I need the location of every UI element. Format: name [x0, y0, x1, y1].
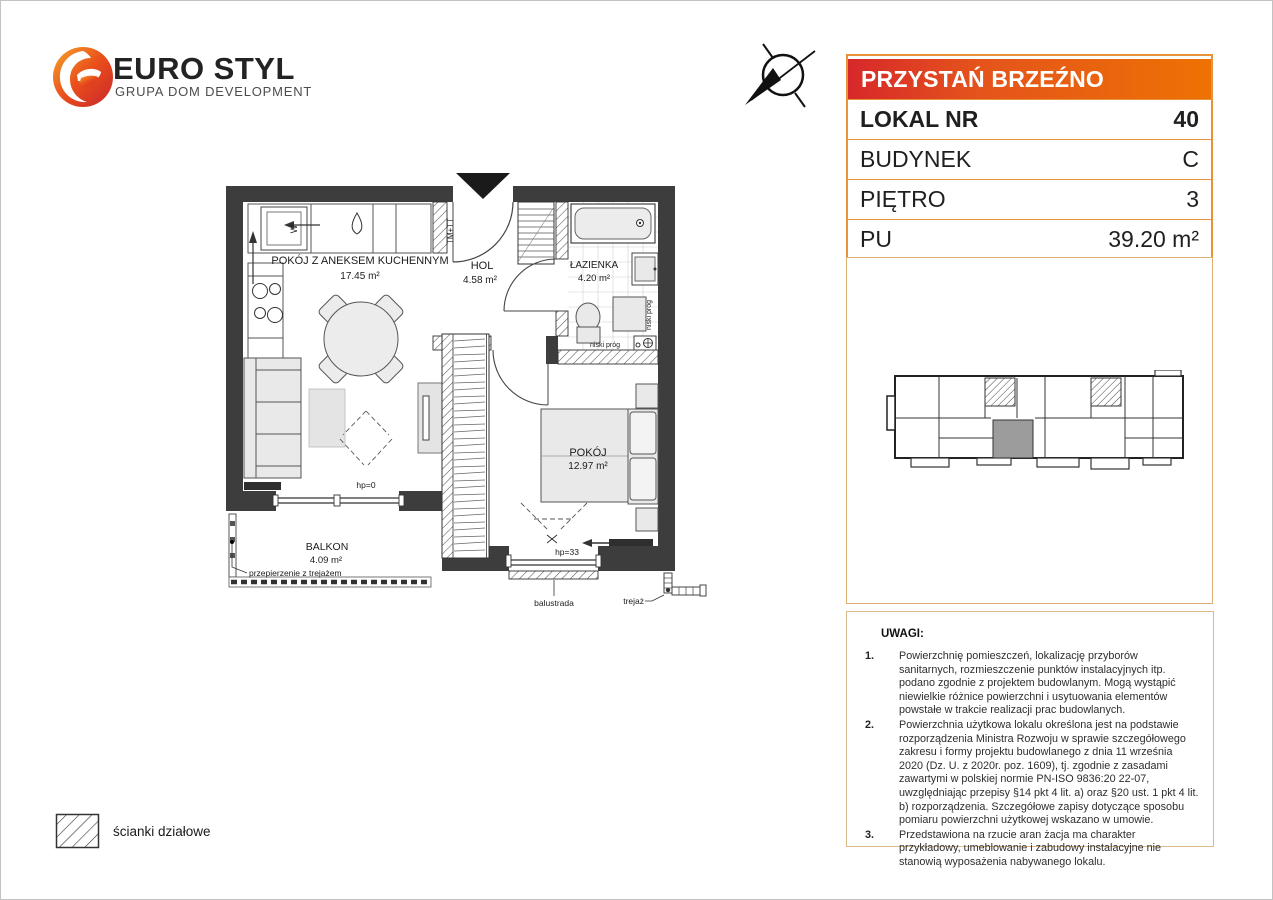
row-label: LOKAL NR — [860, 106, 978, 133]
rug — [309, 389, 345, 447]
bathroom-washer — [613, 297, 646, 331]
table-row-budynek: BUDYNEK C — [848, 139, 1211, 179]
row-label: PIĘTRO — [860, 186, 946, 213]
trellis — [645, 573, 706, 601]
room-label-balcony: BALKON — [306, 541, 349, 553]
table-row-pietro: PIĘTRO 3 — [848, 179, 1211, 219]
unit-info-table: PRZYSTAŃ BRZEŹNO LOKAL NR 40 BUDYNEK C P… — [846, 54, 1213, 261]
notes-box: UWAGI: 1. Powierzchnię pomieszczeń, loka… — [846, 611, 1214, 847]
entrance-marker — [456, 173, 510, 199]
low-threshold-label: niski próg — [590, 342, 620, 349]
notes-title: UWAGI: — [881, 628, 1199, 640]
radiator — [244, 482, 281, 490]
washer-label: W — [289, 224, 299, 233]
room-area-bedroom: 12.97 m² — [568, 461, 608, 472]
table-row-pu: PU 39.20 m² — [848, 219, 1211, 259]
wardrobe — [442, 334, 489, 558]
note-item-3: 3. Przedstawiona na rzucie aran żacja ma… — [861, 829, 1199, 870]
bedroom-window — [506, 555, 601, 567]
hp-zero-label: hp=0 — [356, 480, 375, 490]
row-label: BUDYNEK — [860, 146, 971, 173]
toilet — [576, 303, 600, 343]
shaft-label: TM+TT — [446, 218, 455, 244]
building-overview-plan — [885, 370, 1197, 484]
room-label-living: POKÓJ Z ANEKSEM KUCHENNYM — [271, 254, 448, 267]
room-label-bedroom: POKÓJ — [569, 446, 606, 459]
table-row-lokal-nr: LOKAL NR 40 — [848, 99, 1211, 139]
balcony-door-window — [273, 495, 404, 506]
room-label-hall: HOL — [471, 260, 494, 272]
room-area-living: 17.45 m² — [340, 271, 380, 282]
note-text: Powierzchnię pomieszczeń, lokalizację pr… — [899, 650, 1199, 718]
project-name-header: PRZYSTAŃ BRZEŹNO — [848, 59, 1211, 99]
row-label: PU — [860, 226, 892, 253]
nightstand — [636, 384, 658, 408]
bathroom-sink — [632, 253, 658, 285]
room-area-bathroom: 4.20 m² — [578, 273, 610, 284]
floor-plan: POKÓJ Z ANEKSEM KUCHENNYM 17.45 m² HOL 4… — [216, 169, 716, 644]
bedroom-radiator — [582, 539, 653, 547]
trellis-label: trejaż — [623, 596, 644, 606]
floor-plan-sheet: EURO STYL GRUPA DOM DEVELOPMENT PRZYSTAŃ… — [0, 0, 1273, 900]
brand-name: EURO STYL — [113, 51, 295, 87]
legend-label: ścianki działowe — [113, 824, 211, 839]
balustrade-label: balustrada — [534, 598, 574, 608]
room-area-hall: 4.58 m² — [463, 275, 498, 286]
dining-table — [317, 293, 404, 384]
brand-tagline: GRUPA DOM DEVELOPMENT — [115, 84, 312, 99]
note-item-1: 1. Powierzchnię pomieszczeń, lokalizację… — [861, 650, 1199, 718]
note-text: Powierzchnia użytkowa lokalu określona j… — [899, 719, 1199, 828]
sofa — [244, 358, 301, 478]
row-value: 39.20 m² — [1108, 226, 1199, 253]
eurostyl-logo-icon — [51, 45, 115, 109]
room-area-balcony: 4.09 m² — [310, 555, 342, 566]
tv-cabinet — [418, 383, 442, 453]
row-value: C — [1182, 146, 1199, 173]
utility-meter — [634, 336, 656, 350]
note-number: 2. — [861, 719, 899, 828]
highlighted-unit — [993, 420, 1033, 458]
partition-wall-swatch — [55, 813, 101, 851]
nightstand — [636, 508, 658, 531]
note-number: 1. — [861, 650, 899, 718]
partition-trellis-label: przepierzenie z trejażem — [249, 568, 342, 578]
row-value: 40 — [1173, 106, 1199, 133]
hp-33-label: hp=33 — [555, 547, 579, 557]
note-text: Przedstawiona na rzucie aran żacja ma ch… — [899, 829, 1199, 870]
hall-closet — [518, 202, 554, 264]
balcony-railing — [229, 577, 431, 587]
building-overview-cell — [846, 257, 1213, 604]
room-label-bathroom: ŁAZIENKA — [570, 260, 619, 271]
low-threshold-label: niski próg — [646, 300, 653, 330]
bathtub — [571, 204, 655, 243]
x-mark — [547, 535, 557, 543]
north-arrow-icon — [739, 37, 829, 132]
note-item-2: 2. Powierzchnia użytkowa lokalu określon… — [861, 719, 1199, 828]
row-value: 3 — [1186, 186, 1199, 213]
note-number: 3. — [861, 829, 899, 870]
